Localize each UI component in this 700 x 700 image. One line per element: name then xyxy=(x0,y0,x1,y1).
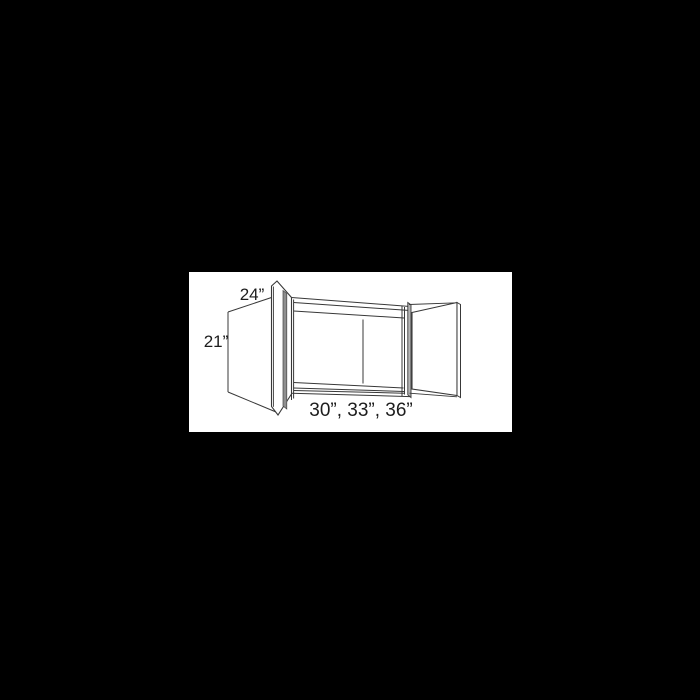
left-door-panel xyxy=(272,281,292,415)
right-door xyxy=(409,303,461,398)
left-door xyxy=(272,281,292,415)
cabinet-right-edge-shading xyxy=(408,303,411,398)
cabinet-diagram: 24” 21” 30”, 33”, 36” xyxy=(0,0,700,700)
page-background: 24” 21” 30”, 33”, 36” xyxy=(0,0,700,700)
height-dimension-label: 21” xyxy=(204,332,229,351)
width-options-label: 30”, 33”, 36” xyxy=(309,400,413,421)
depth-dimension-label: 24” xyxy=(240,285,265,304)
right-door-panel xyxy=(412,303,457,396)
left-door-edge-shading xyxy=(283,291,287,410)
right-door-free-edge xyxy=(457,303,461,398)
